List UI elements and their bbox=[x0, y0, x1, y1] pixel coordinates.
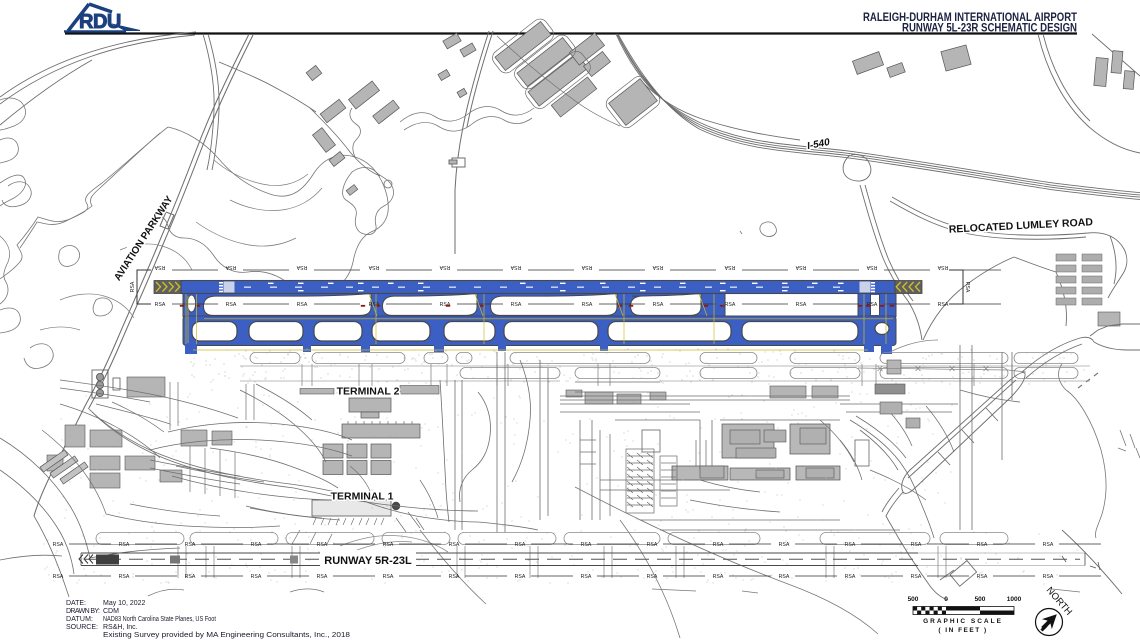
svg-text:RSA: RSA bbox=[251, 574, 262, 580]
svg-text:RSA: RSA bbox=[582, 302, 593, 308]
svg-text:DATUM:: DATUM: bbox=[66, 616, 93, 623]
svg-text:RSA: RSA bbox=[845, 574, 856, 580]
svg-text:RSA: RSA bbox=[515, 542, 526, 548]
svg-text:RSA: RSA bbox=[119, 542, 130, 548]
svg-text:RSA: RSA bbox=[725, 302, 736, 308]
svg-text:RSA: RSA bbox=[724, 264, 735, 270]
svg-text:SOURCE:: SOURCE: bbox=[66, 624, 98, 631]
svg-text:RSA: RSA bbox=[866, 264, 877, 270]
svg-text:RSA: RSA bbox=[317, 574, 328, 580]
svg-text:RSA: RSA bbox=[779, 542, 790, 548]
svg-text:RSA: RSA bbox=[154, 264, 165, 270]
svg-text:RSA: RSA bbox=[296, 264, 307, 270]
svg-text:500: 500 bbox=[975, 596, 986, 603]
svg-text:RSA: RSA bbox=[317, 542, 328, 548]
svg-text:RSA: RSA bbox=[185, 542, 196, 548]
svg-text:Existing Survey provided by MA: Existing Survey provided by MA Engineeri… bbox=[103, 630, 350, 639]
svg-text:RSA: RSA bbox=[779, 574, 790, 580]
svg-text:RSA: RSA bbox=[383, 574, 394, 580]
svg-text:May 10, 2022: May 10, 2022 bbox=[103, 600, 146, 607]
svg-text:RUNWAY 5L-23R SCHEMATIC DESIGN: RUNWAY 5L-23R SCHEMATIC DESIGN bbox=[902, 23, 1077, 35]
svg-text:RSA: RSA bbox=[251, 542, 262, 548]
svg-text:RSA: RSA bbox=[1043, 574, 1054, 580]
svg-text:RSA: RSA bbox=[713, 574, 724, 580]
svg-text:TERMINAL 2: TERMINAL 2 bbox=[337, 386, 400, 398]
svg-text:RSA: RSA bbox=[581, 264, 592, 270]
svg-text:RSA: RSA bbox=[130, 281, 136, 292]
svg-text:RSA: RSA bbox=[977, 574, 988, 580]
svg-text:RSA: RSA bbox=[647, 574, 658, 580]
svg-text:RSA: RSA bbox=[439, 264, 450, 270]
svg-text:RUNWAY 5R-23L: RUNWAY 5R-23L bbox=[324, 555, 412, 567]
svg-text:RSA: RSA bbox=[155, 302, 166, 308]
svg-text:RDU: RDU bbox=[79, 11, 121, 33]
svg-text:RSA: RSA bbox=[1043, 542, 1054, 548]
svg-text:RSA: RSA bbox=[911, 542, 922, 548]
svg-text:RSA: RSA bbox=[515, 574, 526, 580]
svg-text:RSA: RSA bbox=[449, 574, 460, 580]
svg-text:RSA: RSA bbox=[185, 574, 196, 580]
svg-text:RSA: RSA bbox=[581, 574, 592, 580]
svg-text:RSA: RSA bbox=[652, 264, 663, 270]
svg-text:RSA: RSA bbox=[297, 302, 308, 308]
svg-text:RSA: RSA bbox=[53, 574, 64, 580]
svg-text:RSA: RSA bbox=[511, 302, 522, 308]
svg-text:1000: 1000 bbox=[1007, 596, 1022, 603]
svg-text:RSA: RSA bbox=[938, 302, 949, 308]
svg-text:RSA: RSA bbox=[226, 302, 237, 308]
svg-text:RSA: RSA bbox=[383, 542, 394, 548]
svg-text:RSA: RSA bbox=[937, 264, 948, 270]
svg-text:RSA: RSA bbox=[647, 542, 658, 548]
svg-text:500: 500 bbox=[908, 596, 919, 603]
svg-text:RSA: RSA bbox=[911, 574, 922, 580]
svg-text:RSA: RSA bbox=[845, 542, 856, 548]
svg-text:RSA: RSA bbox=[964, 282, 970, 293]
svg-text:RSA: RSA bbox=[796, 302, 807, 308]
svg-text:DRAWN BY:: DRAWN BY: bbox=[66, 608, 100, 615]
svg-text:DATE:: DATE: bbox=[66, 600, 86, 607]
svg-text:RSA: RSA bbox=[225, 264, 236, 270]
svg-text:RSA: RSA bbox=[653, 302, 664, 308]
svg-text:GRAPHIC SCALE: GRAPHIC SCALE bbox=[923, 618, 1003, 625]
svg-text:RSA: RSA bbox=[510, 264, 521, 270]
svg-text:NAD83 North Carolina State Pla: NAD83 North Carolina State Planes, US Fo… bbox=[103, 616, 216, 623]
svg-text:RSA: RSA bbox=[119, 574, 130, 580]
svg-text:RSA: RSA bbox=[977, 542, 988, 548]
svg-text:RSA: RSA bbox=[795, 264, 806, 270]
svg-text:RSA: RSA bbox=[581, 542, 592, 548]
svg-text:RSA: RSA bbox=[449, 542, 460, 548]
svg-text:TERMINAL 1: TERMINAL 1 bbox=[331, 491, 394, 503]
svg-text:RSA: RSA bbox=[713, 542, 724, 548]
svg-text:RSA: RSA bbox=[53, 542, 64, 548]
svg-text:CDM: CDM bbox=[103, 608, 119, 615]
svg-text:0: 0 bbox=[944, 596, 948, 603]
svg-text:RSA: RSA bbox=[368, 264, 379, 270]
svg-text:( IN FEET ): ( IN FEET ) bbox=[938, 627, 987, 634]
